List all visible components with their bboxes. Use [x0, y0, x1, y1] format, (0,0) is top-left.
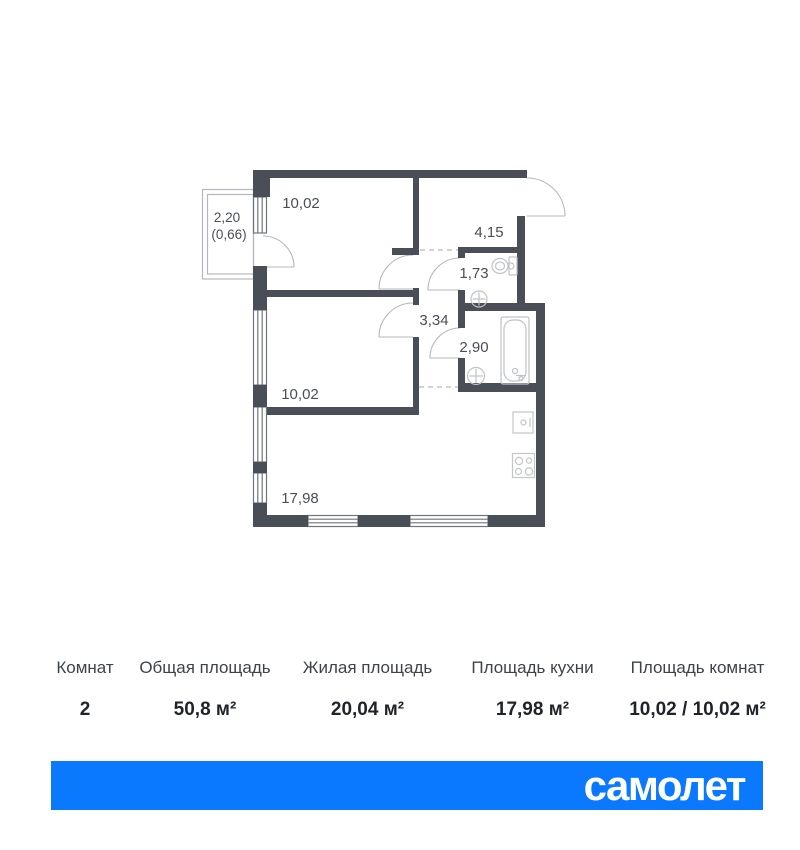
summary-header: Комнат	[56, 658, 113, 678]
brand-logo: самолет	[584, 765, 745, 807]
bath-sink-icon	[468, 368, 485, 385]
room-area-label-bedroom-top: 10,02	[282, 195, 320, 212]
summary-col-total-area: Общая площадь 50,8 м²	[130, 658, 280, 721]
summary-value: 10,02 / 10,02 м²	[629, 699, 766, 721]
room-area-label-wc: 1,73	[459, 265, 488, 282]
summary-header: Площадь комнат	[631, 658, 765, 678]
summary-col-rooms-area: Площадь комнат 10,02 / 10,02 м²	[610, 658, 785, 721]
summary-value: 17,98 м²	[496, 699, 569, 721]
room-area-label-bedroom-middle: 10,02	[281, 386, 319, 403]
kitchen-sink-icon	[513, 412, 533, 433]
summary-value: 2	[80, 699, 91, 721]
room-area-label-corridor: 3,34	[419, 312, 448, 329]
summary-value: 50,8 м²	[174, 699, 237, 721]
summary-header: Общая площадь	[139, 658, 270, 678]
wc-sink-icon	[471, 291, 487, 307]
room-area-label-kitchen-living: 17,98	[281, 490, 319, 507]
summary-col-rooms: Комнат 2	[40, 658, 130, 721]
balcony-area-label: 2,20	[214, 210, 240, 225]
toilet-icon	[492, 257, 517, 275]
bathtub-icon	[501, 317, 529, 384]
summary-value: 20,04 м²	[331, 699, 404, 721]
summary-header: Жилая площадь	[303, 658, 432, 678]
flat-summary-table: Комнат 2 Общая площадь 50,8 м² Жилая пло…	[40, 658, 785, 721]
stove-icon	[513, 454, 535, 478]
summary-col-kitchen-area: Площадь кухни 17,98 м²	[455, 658, 610, 721]
floor-plan: 2,20 (0,66) 10,02 4,15 1,73 3,34 2,90 10…	[0, 0, 800, 620]
balcony-counted-area-label: (0,66)	[211, 227, 246, 242]
brand-banner: самолет	[51, 761, 763, 810]
flat-card: 2,20 (0,66) 10,02 4,15 1,73 3,34 2,90 10…	[0, 0, 800, 850]
windows	[254, 197, 489, 527]
summary-col-living-area: Жилая площадь 20,04 м²	[280, 658, 455, 721]
summary-header: Площадь кухни	[471, 658, 593, 678]
room-area-label-hallway: 4,15	[474, 224, 503, 241]
room-area-label-bathroom: 2,90	[459, 339, 488, 356]
